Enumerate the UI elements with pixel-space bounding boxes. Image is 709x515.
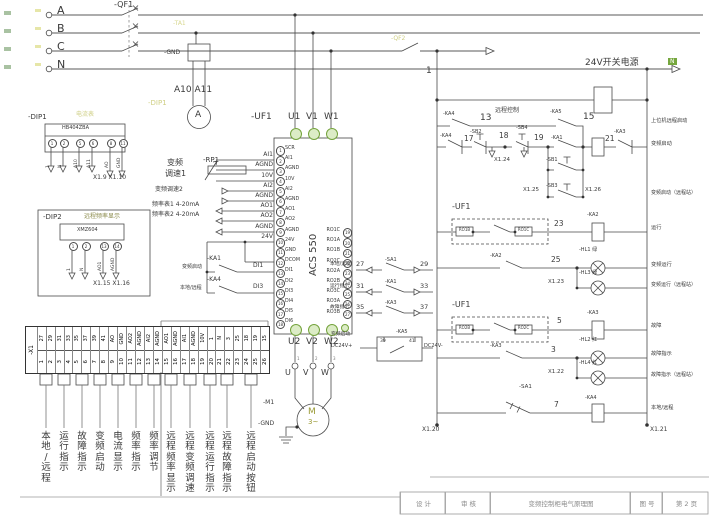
circuit-graphics	[0, 0, 709, 515]
schematic-page: 1SCR2AI13AGND410V5AI26AGND7AO18AO29AGND1…	[0, 0, 709, 515]
